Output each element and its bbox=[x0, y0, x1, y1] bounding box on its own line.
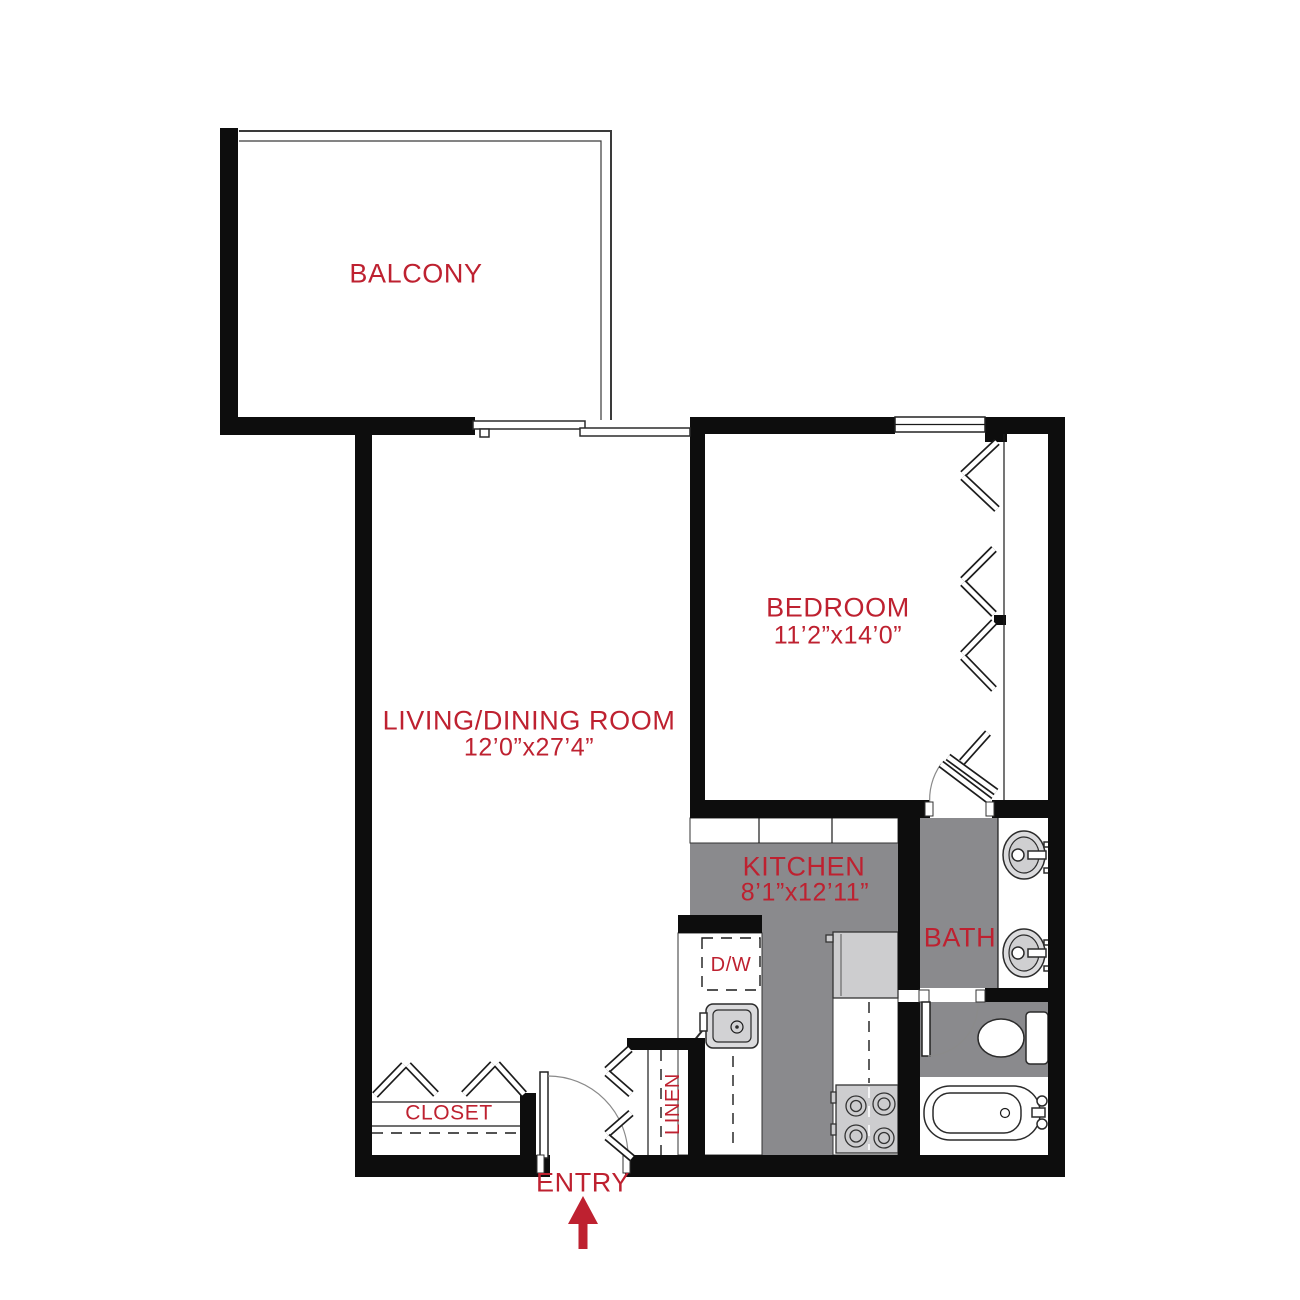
wall-bedroom-bottom bbox=[690, 800, 930, 818]
kitchen-label: KITCHEN bbox=[743, 854, 866, 881]
living-room-dims: 12’0”x27’4” bbox=[464, 736, 594, 761]
bifold-door bbox=[607, 1073, 631, 1094]
tub-knob bbox=[1037, 1096, 1047, 1106]
wall-kitchen-bath-upper bbox=[898, 818, 920, 990]
door-swing-arc bbox=[930, 764, 941, 806]
bifold-door bbox=[408, 1065, 436, 1094]
bedroom-label: BEDROOM bbox=[766, 595, 910, 622]
wall-linen-right bbox=[688, 1042, 705, 1157]
sink-spout bbox=[1028, 851, 1046, 859]
door-jamb bbox=[919, 990, 929, 1002]
bathtub bbox=[924, 1086, 1047, 1140]
stove-control bbox=[831, 1092, 836, 1103]
bifold-door bbox=[607, 1137, 632, 1158]
toilet-bowl bbox=[978, 1019, 1024, 1057]
floor-plan-drawing bbox=[0, 0, 1300, 1300]
bedroom-window bbox=[895, 417, 985, 432]
kitchen-top-counter bbox=[690, 818, 898, 843]
wall-bedroom-bottom-right bbox=[992, 800, 1048, 818]
dishwasher-label: D/W bbox=[711, 955, 752, 975]
bifold-door bbox=[963, 549, 994, 580]
wall-living-left bbox=[355, 417, 372, 1177]
refrigerator-handle bbox=[826, 935, 833, 942]
door-jamb bbox=[976, 990, 985, 1002]
bifold-door bbox=[962, 733, 988, 762]
linen-label: LINEN bbox=[663, 1073, 683, 1135]
wall-kitchen-bath-lower bbox=[898, 1002, 920, 1157]
tub-spout bbox=[1032, 1108, 1045, 1117]
sliding-panel bbox=[473, 421, 585, 429]
toilet-tank bbox=[1026, 1012, 1048, 1064]
refrigerator-body bbox=[833, 932, 898, 998]
bath-vestibule-floor bbox=[918, 818, 998, 988]
sink-faucet bbox=[700, 1013, 707, 1031]
arrow-stem bbox=[579, 1221, 588, 1249]
wall-bedroom-top bbox=[690, 417, 895, 434]
door-leaf bbox=[540, 1072, 548, 1158]
wall-kitchen-counter-top bbox=[678, 915, 762, 933]
door-jamb bbox=[986, 802, 994, 816]
bifold-door bbox=[963, 622, 994, 654]
wall-closet-right bbox=[520, 1093, 536, 1157]
bath-label: BATH bbox=[924, 925, 996, 952]
bifold-door bbox=[963, 477, 997, 509]
bifold-door bbox=[464, 1064, 493, 1094]
stove-control bbox=[831, 1124, 836, 1135]
stove-body bbox=[836, 1085, 898, 1153]
sink-spout bbox=[1028, 949, 1046, 957]
bifold-door bbox=[375, 1065, 404, 1095]
wall-balcony-left bbox=[220, 128, 238, 435]
linen-closet bbox=[607, 1049, 661, 1158]
sliding-handle bbox=[480, 429, 489, 437]
balcony-sliding-door bbox=[473, 421, 690, 437]
bifold-door bbox=[607, 1049, 630, 1070]
wall-right-outer bbox=[1048, 417, 1065, 1177]
bifold-door bbox=[497, 1064, 524, 1094]
arrow-head bbox=[568, 1196, 598, 1224]
bedroom-bath-door bbox=[925, 764, 994, 816]
door-jamb bbox=[925, 802, 933, 816]
kitchen-dims: 8’1”x12’11” bbox=[741, 881, 869, 906]
wall-linen-top bbox=[627, 1038, 705, 1050]
sink-drain bbox=[1012, 849, 1024, 861]
bifold-door bbox=[963, 442, 997, 474]
bifold-door bbox=[963, 583, 994, 614]
tub-basin bbox=[933, 1093, 1021, 1133]
closet-label: CLOSET bbox=[405, 1103, 493, 1124]
entry-arrow-icon bbox=[568, 1196, 598, 1249]
sink-basin-inner bbox=[713, 1010, 751, 1042]
floor-plan: BALCONY LIVING/DINING ROOM 12’0”x27’4” B… bbox=[0, 0, 1300, 1300]
sliding-panel bbox=[580, 428, 690, 436]
wall-toilet-room-top bbox=[985, 988, 1048, 1002]
wall-balcony-bottom bbox=[220, 417, 475, 435]
bedroom-dims: 11’2”x14’0” bbox=[774, 624, 902, 649]
refrigerator bbox=[826, 932, 898, 998]
tub-knob bbox=[1037, 1119, 1047, 1129]
wall-bottom-right bbox=[625, 1155, 1065, 1177]
bifold-door bbox=[607, 1113, 631, 1134]
door-leaf bbox=[922, 1002, 930, 1056]
wall-bottom-left bbox=[355, 1155, 550, 1177]
wall-living-bedroom bbox=[690, 417, 705, 818]
sink-drain-dot bbox=[735, 1025, 739, 1029]
bifold-door bbox=[963, 657, 994, 689]
living-room-label: LIVING/DINING ROOM bbox=[383, 708, 676, 735]
entry-label: ENTRY bbox=[536, 1170, 630, 1197]
stove bbox=[831, 1085, 898, 1153]
sink-drain bbox=[1012, 947, 1024, 959]
balcony-label: BALCONY bbox=[349, 261, 482, 288]
